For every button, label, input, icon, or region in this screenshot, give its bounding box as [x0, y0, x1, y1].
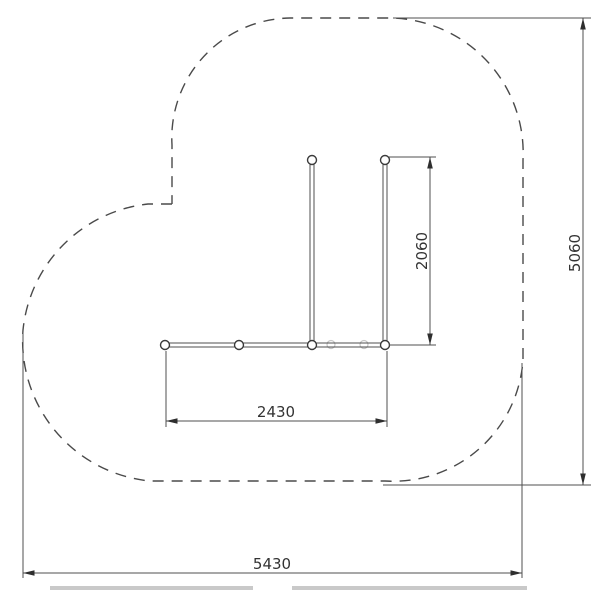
arrowhead-right	[376, 418, 388, 424]
post-marker	[308, 341, 317, 350]
dimension-label-5430: 5430	[253, 555, 291, 573]
arrowhead-left	[23, 570, 35, 576]
plan-drawing-svg: 2060 2430 5060 5430	[0, 0, 600, 590]
arrowhead-right	[511, 570, 523, 576]
post-marker	[308, 156, 317, 165]
post-marker	[381, 341, 390, 350]
dimension-bay-depth: 2060	[389, 157, 436, 345]
bottom-edge	[50, 586, 527, 590]
post-marker	[161, 341, 170, 350]
bottom-edge-bar	[50, 586, 253, 590]
arrowhead-left	[166, 418, 178, 424]
dimension-label-5060: 5060	[566, 234, 584, 272]
arrowhead-up	[580, 18, 586, 30]
drawing-canvas: 2060 2430 5060 5430	[0, 0, 600, 590]
swing-frame	[161, 156, 390, 350]
arrowhead-down	[580, 474, 586, 486]
dimension-beam-span: 2430	[166, 351, 387, 427]
arrowhead-up	[427, 157, 433, 169]
dimension-label-2060: 2060	[413, 232, 431, 270]
dimension-zone-width: 5430	[23, 333, 522, 578]
dimension-label-2430: 2430	[257, 403, 295, 421]
post-marker	[381, 156, 390, 165]
bottom-edge-bar	[292, 586, 527, 590]
post-marker	[235, 341, 244, 350]
arrowhead-down	[427, 334, 433, 346]
